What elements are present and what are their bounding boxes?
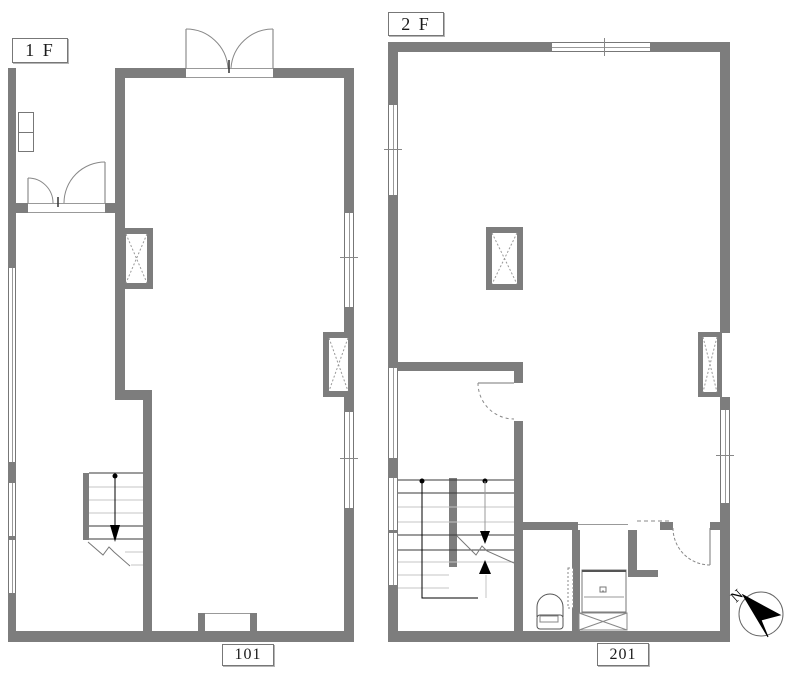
stairs-2f [398, 479, 514, 599]
floor-label-1f: 1 F [12, 38, 68, 63]
sliding-door-toilet [568, 568, 573, 608]
shelf-x-icon [579, 613, 627, 630]
pillar-x-icon [126, 233, 717, 392]
toilet-icon [537, 594, 563, 629]
stairs-1f [88, 473, 143, 566]
floor-label-1f-text: 1 F [25, 40, 55, 61]
stair-down-arrow [480, 531, 490, 544]
floor-label-2f-text: 2 F [401, 14, 431, 35]
break-line [88, 542, 130, 566]
room-number-101: 101 [222, 644, 274, 666]
door-room-2f [637, 521, 710, 565]
floor-plan-drawing: N 1 F 2 F 101 201 [0, 0, 800, 675]
stair-path [422, 481, 478, 598]
interior-double-door-1f [28, 162, 105, 207]
linework-overlay: N [0, 0, 800, 675]
room-number-201-text: 201 [610, 646, 637, 664]
north-compass: N [728, 587, 783, 637]
room-number-101-text: 101 [235, 646, 262, 664]
room-number-201: 201 [597, 643, 649, 666]
vanity-icon [582, 570, 626, 612]
door-stair-hall-2f [478, 383, 514, 419]
entrance-double-door-1f [186, 29, 273, 73]
floor-label-2f: 2 F [388, 12, 444, 36]
